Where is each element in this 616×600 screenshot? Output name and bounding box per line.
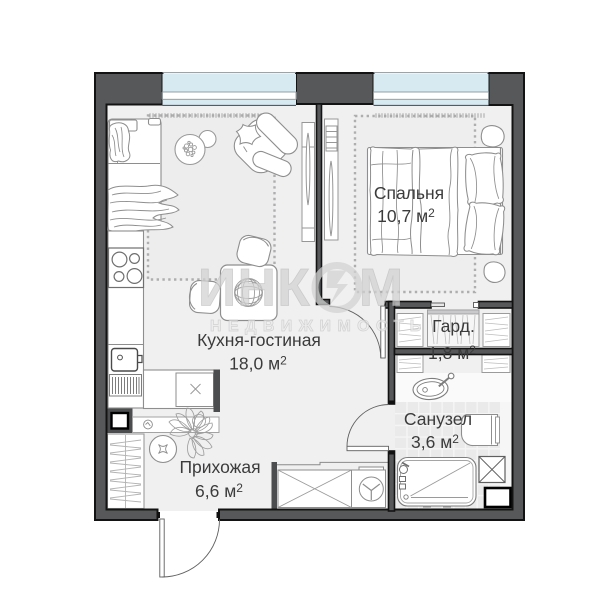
svg-text:6,6 м2: 6,6 м2 <box>195 481 243 501</box>
svg-text:ИНК: ИНК <box>198 259 311 318</box>
svg-text:Прихожая: Прихожая <box>179 457 260 477</box>
svg-text:Спальня: Спальня <box>374 183 444 203</box>
svg-text:1,8 м2: 1,8 м2 <box>428 343 476 363</box>
svg-text:18,0 м2: 18,0 м2 <box>229 354 287 374</box>
svg-text:10,7 м2: 10,7 м2 <box>377 206 435 226</box>
svg-text:Гард.: Гард. <box>432 316 475 336</box>
svg-text:Санузел: Санузел <box>404 409 472 429</box>
svg-text:3,6 м2: 3,6 м2 <box>411 432 459 452</box>
svg-text:Кухня-гостиная: Кухня-гостиная <box>197 330 321 350</box>
svg-text:М: М <box>359 259 403 318</box>
